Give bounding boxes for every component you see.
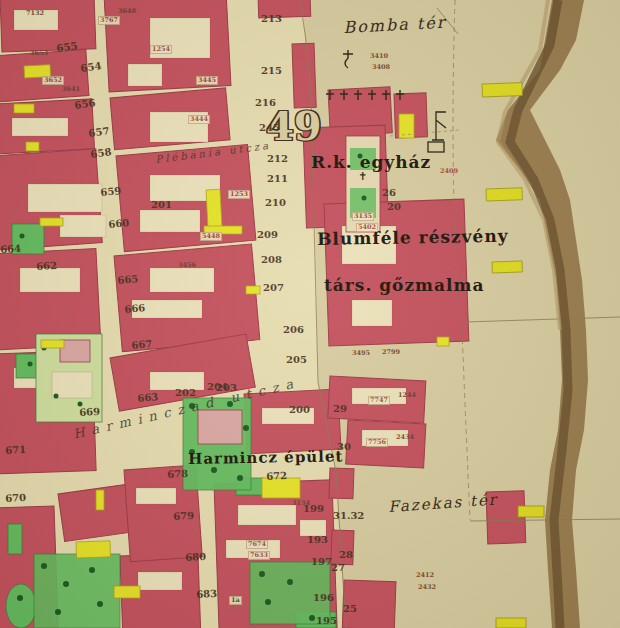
historical-cadastral-map: ✝ <box>0 0 620 628</box>
church-block-detail: ✝ <box>346 136 380 232</box>
map-canvas: ✝ <box>0 0 620 628</box>
church-cross-icon: ✝ <box>358 170 367 183</box>
